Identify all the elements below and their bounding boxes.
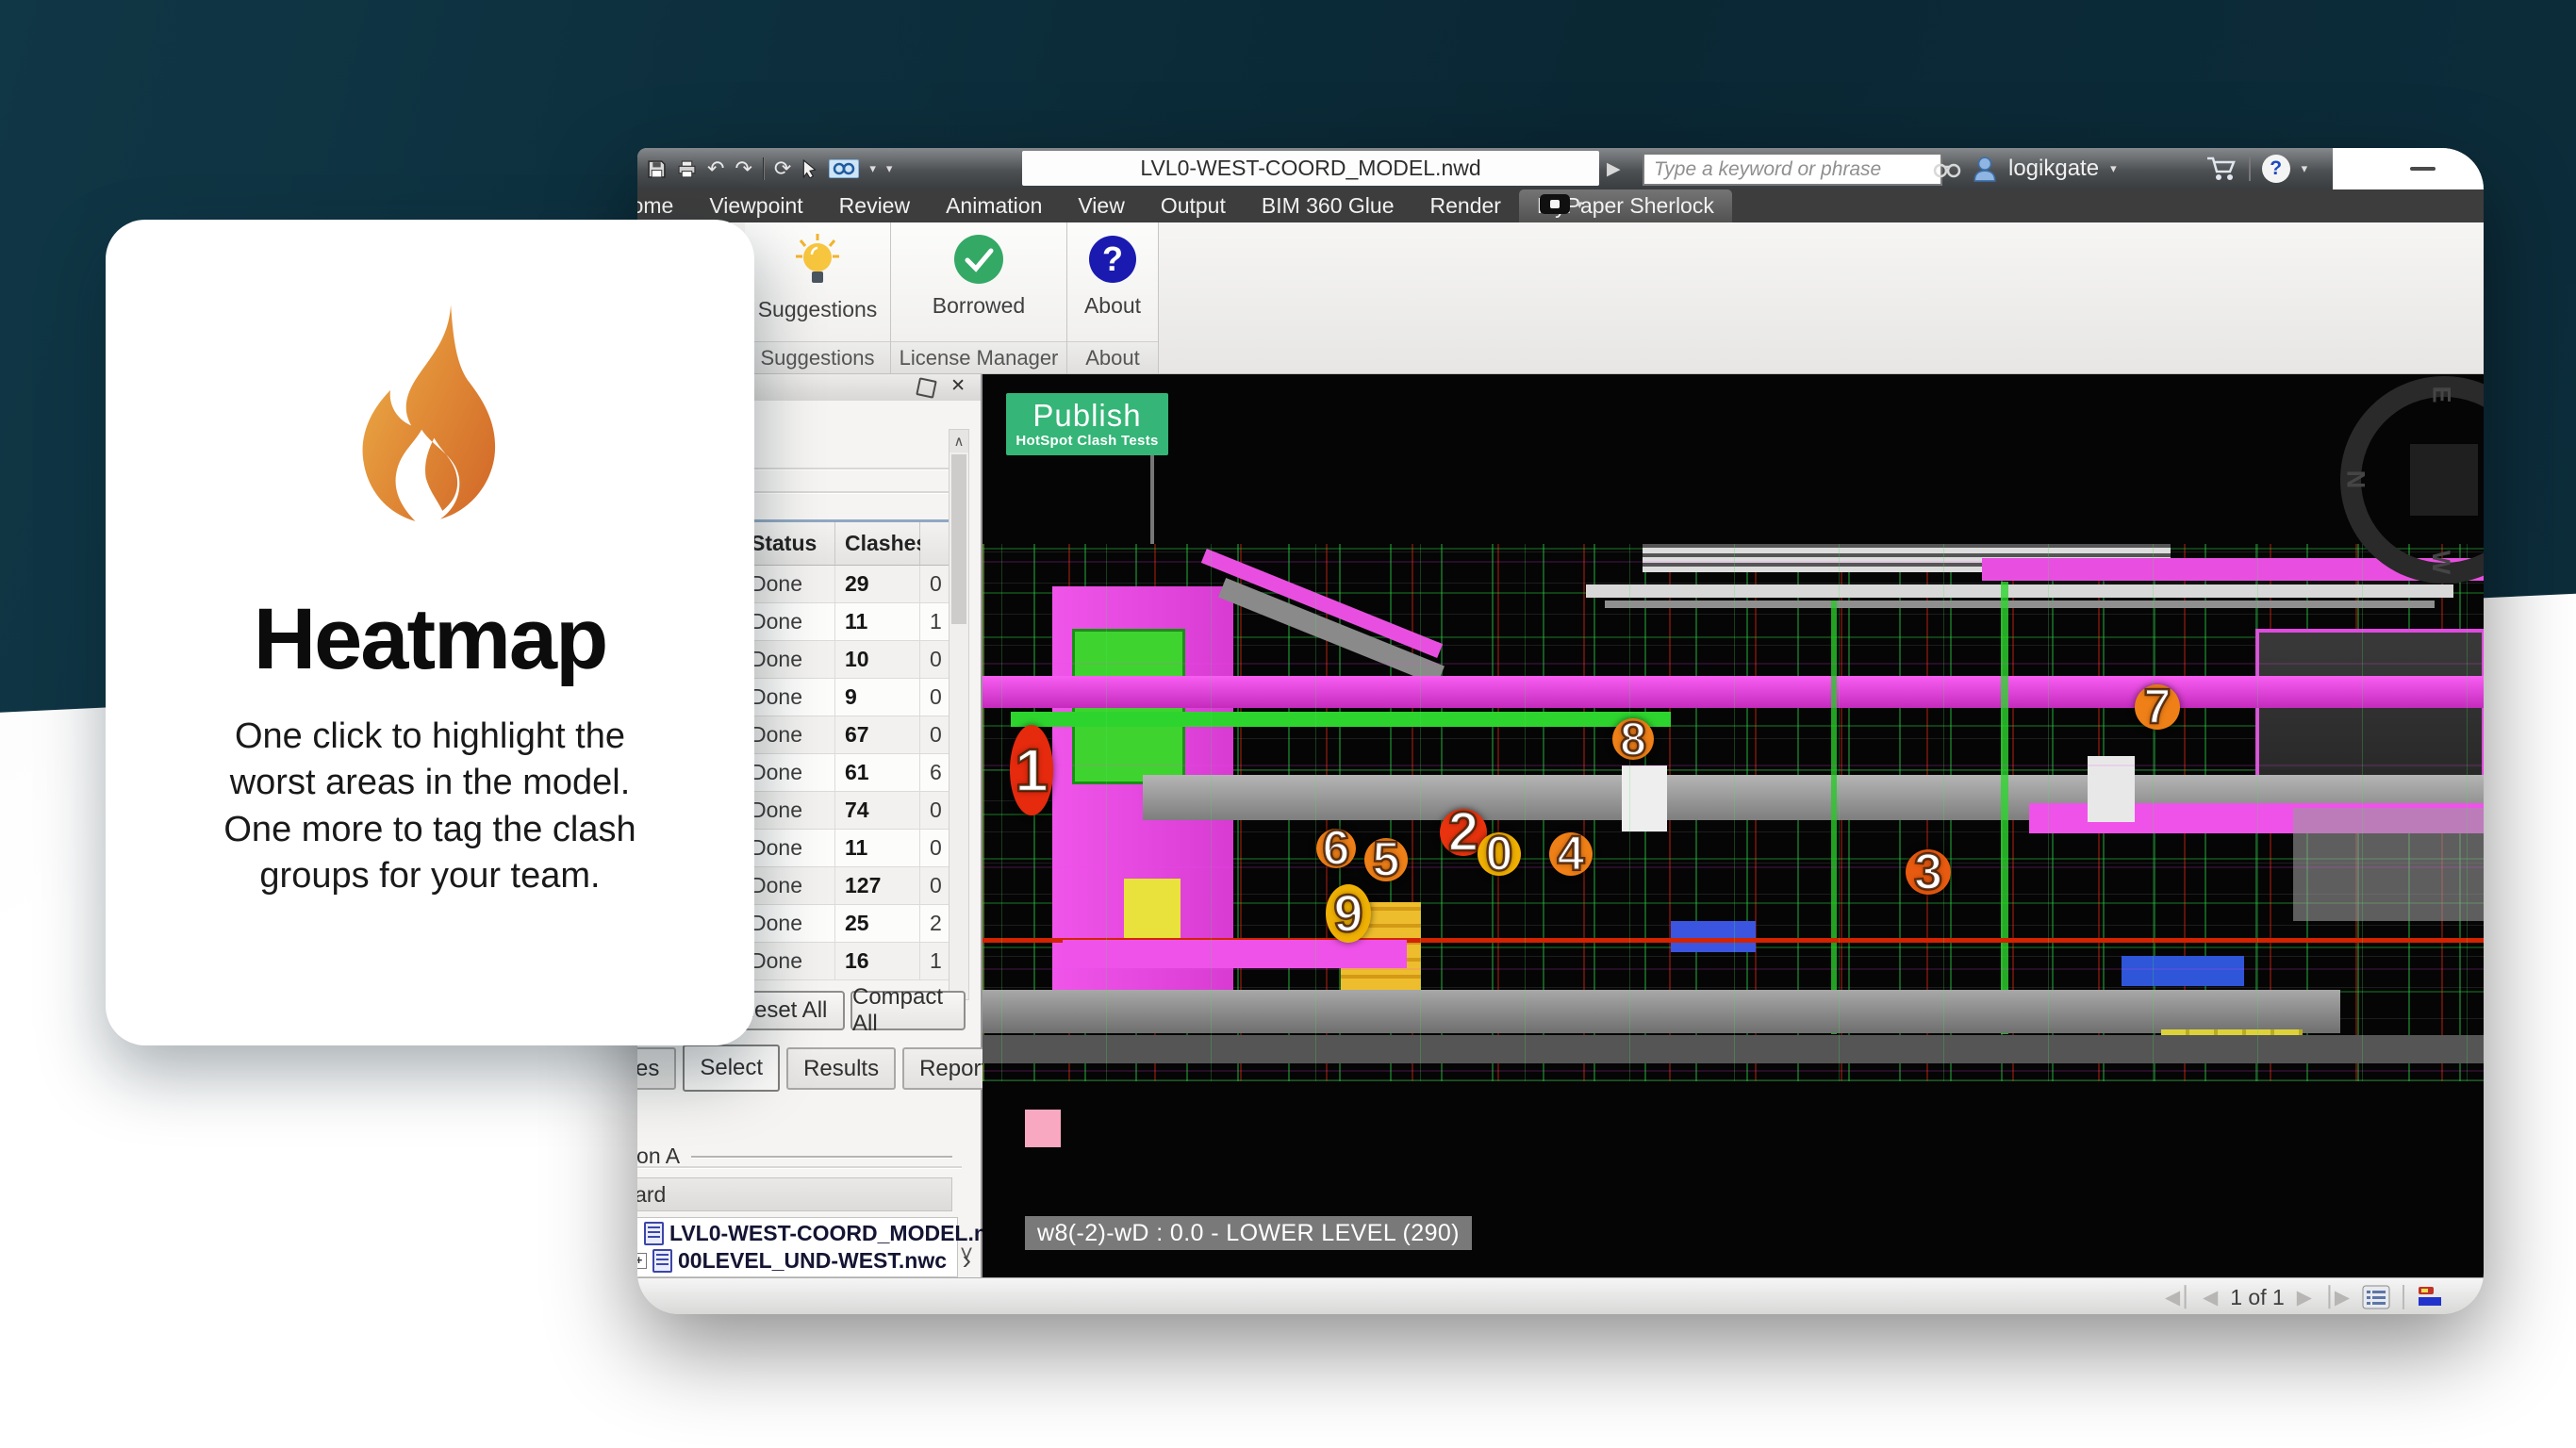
clash-marker-number: 2 — [1448, 805, 1478, 860]
status-bar: ◀⎮ ◀ 1 of 1 ▶ ⎮▶ — [637, 1277, 2484, 1314]
clashes-cell: 11 — [835, 603, 920, 641]
status-cell: Done — [741, 792, 835, 830]
tree-item[interactable]: LVL0-WEST-COORD_MODEL.nwd — [637, 1220, 957, 1247]
page-indicator: 1 of 1 — [2230, 1285, 2285, 1310]
ribbon-tab[interactable]: Review — [821, 189, 928, 222]
scrollbar-thumb[interactable] — [951, 454, 966, 624]
compass-north-label: N — [2340, 470, 2370, 489]
question-circle-icon: ? — [1086, 232, 1139, 287]
help-menu-caret-icon[interactable]: ▾ — [2302, 161, 2308, 176]
description-line: One more to tag the clash — [106, 807, 754, 853]
navisworks-window: ↶ ↷ ⟳ ▾ ▾ LVL0-WEST-COORD_MODEL.nwd ▶ Ty… — [637, 148, 2484, 1314]
clash-marker-number: 3 — [1914, 847, 1942, 897]
clash-marker-number: 1 — [1015, 740, 1049, 800]
tree-item[interactable]: + 00LEVEL_UND-WEST.nwc — [637, 1247, 957, 1275]
clash-marker-number: 4 — [1558, 830, 1585, 879]
toolbar-separator — [763, 157, 764, 180]
clashes-cell: 11 — [835, 830, 920, 867]
clashes-cell: 61 — [835, 754, 920, 792]
media-icon — [1540, 194, 1570, 214]
status-cell: Done — [741, 566, 835, 603]
file-icon — [644, 1222, 664, 1245]
viewport-status-label: w8(-2)-wD : 0.0 - LOWER LEVEL (290) — [1025, 1216, 1472, 1250]
table-scrollbar[interactable]: ∧ — [949, 429, 969, 1000]
status-cell: Done — [741, 830, 835, 867]
panel-tab[interactable]: Results — [786, 1047, 896, 1090]
clash-marker[interactable]: 0 — [1478, 832, 1521, 876]
clash-marker[interactable]: 6 — [1316, 829, 1356, 868]
user-icon[interactable] — [1973, 156, 1997, 182]
undo-icon[interactable]: ↶ — [707, 158, 724, 179]
print-icon[interactable] — [677, 159, 697, 179]
sheet-pager: ◀⎮ ◀ 1 of 1 ▶ ⎮▶ — [2165, 1278, 2445, 1314]
clash-marker[interactable]: 5 — [1364, 838, 1408, 881]
card-description: One click to highlight the worst areas i… — [106, 714, 754, 900]
column-header[interactable]: Clashes — [835, 522, 920, 566]
ribbon-group-label[interactable]: About — [1067, 341, 1158, 373]
search-placeholder: Type a keyword or phrase — [1654, 158, 1881, 181]
status-cell: Done — [741, 905, 835, 943]
flame-icon — [325, 301, 535, 563]
lightbulb-icon — [793, 232, 842, 290]
title-bar: ↶ ↷ ⟳ ▾ ▾ LVL0-WEST-COORD_MODEL.nwd ▶ Ty… — [637, 148, 2484, 189]
suggestions-button[interactable]: Suggestions — [745, 222, 890, 341]
sheet-list-icon[interactable] — [2362, 1285, 2390, 1309]
model-tree: LVL0-WEST-COORD_MODEL.nwd + 00LEVEL_UND-… — [637, 1217, 958, 1277]
clashes-cell: 16 — [835, 943, 920, 980]
model-decor — [1025, 1110, 1061, 1147]
clash-marker-number: 6 — [1323, 824, 1350, 873]
previous-sheet-icon[interactable]: ◀ — [2203, 1286, 2218, 1309]
clashes-cell: 67 — [835, 716, 920, 754]
status-cell: Done — [741, 943, 835, 980]
clashes-cell: 29 — [835, 566, 920, 603]
card-title: Heatmap — [106, 590, 754, 689]
status-cell: Done — [741, 603, 835, 641]
publish-button[interactable]: Publish HotSpot Clash Tests — [1006, 393, 1168, 455]
work-area: ✕ Status Clashes — [637, 374, 2484, 1277]
clashes-cell: 10 — [835, 641, 920, 679]
ribbon-tab[interactable]: Viewpoint — [691, 189, 820, 222]
ribbon-tab[interactable]: Animation — [928, 189, 1060, 222]
help-icon[interactable]: ? — [2262, 155, 2290, 183]
next-sheet-icon[interactable]: ▶ — [2297, 1286, 2312, 1309]
redo-icon[interactable]: ↷ — [735, 158, 751, 179]
username-label[interactable]: logikgate — [2008, 156, 2099, 182]
clash-marker[interactable]: 4 — [1549, 832, 1593, 876]
refresh-icon[interactable]: ⟳ — [774, 158, 791, 179]
clash-marker-number: 9 — [1333, 887, 1362, 940]
panel-tab[interactable]: Rules — [637, 1047, 676, 1090]
window-corner — [2333, 148, 2484, 189]
description-line: One click to highlight the — [106, 714, 754, 760]
toolbar-options-icon[interactable]: ▾ — [886, 161, 893, 176]
clash-marker-number: 8 — [1620, 716, 1646, 763]
quick-access-toolbar: ↶ ↷ ⟳ ▾ ▾ — [647, 148, 892, 189]
titlebar-right-cluster: logikgate ▾ ? ▾ — [1933, 148, 2307, 189]
status-cell: Done — [741, 641, 835, 679]
media-menu[interactable]: ▾ — [1540, 194, 1583, 214]
viewport-3d[interactable]: Publish HotSpot Clash Tests E N W — [983, 374, 2484, 1277]
panel-tab[interactable]: Select — [683, 1045, 780, 1092]
clash-marker[interactable]: 7 — [2135, 684, 2180, 730]
panel-tabs: Rules Select Results Re — [637, 1047, 1004, 1092]
status-cell: Done — [741, 679, 835, 716]
last-sheet-icon[interactable]: ⎮▶ — [2324, 1286, 2350, 1309]
stage: ↶ ↷ ⟳ ▾ ▾ LVL0-WEST-COORD_MODEL.nwd ▶ Ty… — [0, 0, 2576, 1448]
performance-icon[interactable] — [2417, 1285, 2445, 1309]
ribbon-group-label[interactable]: Suggestions — [745, 341, 890, 373]
check-circle-icon — [951, 232, 1006, 287]
dropdown-icon[interactable]: ▾ — [869, 161, 876, 176]
ribbon-group-about: ? About About — [1067, 222, 1159, 373]
media-caret-icon: ▾ — [1577, 197, 1583, 212]
ribbon-tab[interactable]: View — [1060, 189, 1142, 222]
user-menu-caret-icon[interactable]: ▾ — [2110, 161, 2117, 176]
compact-all-button[interactable]: Compact All — [850, 991, 966, 1030]
minimize-icon[interactable] — [2410, 167, 2436, 171]
file-icon — [652, 1249, 672, 1273]
document-switch-icon[interactable]: ▶ — [1607, 158, 1621, 180]
ribbon-group-license: Borrowed License Manager — [891, 222, 1067, 373]
first-sheet-icon[interactable]: ◀⎮ — [2165, 1286, 2190, 1309]
clash-marker-number: 0 — [1486, 830, 1513, 879]
standard-dropdown[interactable]: Standard — [637, 1177, 952, 1211]
clashes-cell: 25 — [835, 905, 920, 943]
ribbon-group-label[interactable]: License Manager — [891, 341, 1066, 373]
clash-marker[interactable]: 1 — [1010, 725, 1053, 815]
status-cell: Done — [741, 867, 835, 905]
ribbon-tab[interactable]: BIM 360 Glue — [1244, 189, 1412, 222]
svg-text:?: ? — [1102, 239, 1123, 278]
borrowed-button[interactable]: Borrowed — [891, 222, 1066, 341]
ribbon-tab[interactable]: Render — [1412, 189, 1519, 222]
clash-marker[interactable]: 3 — [1906, 849, 1951, 895]
save-icon[interactable] — [647, 159, 667, 179]
column-header[interactable]: Status — [741, 522, 835, 566]
tree-scroll-right-icon[interactable]: › — [963, 1245, 971, 1275]
cart-icon[interactable] — [2205, 156, 2237, 182]
panel-pin-icon[interactable] — [916, 377, 937, 399]
feature-card: Heatmap One click to highlight the worst… — [106, 220, 754, 1045]
ribbon-tab[interactable]: Output — [1143, 189, 1244, 222]
status-cell: Done — [741, 754, 835, 792]
description-line: groups for your team. — [106, 853, 754, 899]
selection-a-row: Selection A — [637, 1144, 952, 1169]
cursor-icon[interactable] — [801, 159, 818, 178]
ribbon: Suggestions Suggestions Borrowed License… — [637, 222, 2484, 374]
about-button[interactable]: ? About — [1067, 222, 1158, 341]
panel-close-icon[interactable]: ✕ — [950, 375, 966, 397]
search-input[interactable]: Type a keyword or phrase — [1643, 153, 1942, 186]
binoculars-icon[interactable] — [1933, 158, 1961, 179]
clashes-cell: 9 — [835, 679, 920, 716]
bim-model — [983, 544, 2484, 1081]
compass-east-label: E — [2427, 386, 2456, 403]
expander-icon[interactable]: + — [637, 1253, 647, 1269]
clash-marker[interactable]: 8 — [1612, 718, 1654, 760]
compass-west-label: W — [2426, 551, 2455, 574]
statusbar-separator — [2403, 1285, 2404, 1309]
ribbon-group-suggestions: Suggestions Suggestions — [745, 222, 891, 373]
scroll-up-icon[interactable]: ∧ — [949, 430, 968, 452]
clash-marker-number: 5 — [1373, 835, 1400, 884]
select-links-icon[interactable] — [829, 159, 859, 178]
status-cell: Done — [741, 716, 835, 754]
clashes-cell: 74 — [835, 792, 920, 830]
clash-marker-number: 7 — [2144, 683, 2171, 732]
description-line: worst areas in the model. — [106, 760, 754, 806]
document-title: LVL0-WEST-COORD_MODEL.nwd — [1022, 151, 1599, 186]
clashes-cell: 127 — [835, 867, 920, 905]
titlebar-separator — [2249, 156, 2251, 181]
clash-marker[interactable]: 9 — [1326, 884, 1371, 943]
ribbon-tab[interactable]: Home — [637, 189, 691, 222]
